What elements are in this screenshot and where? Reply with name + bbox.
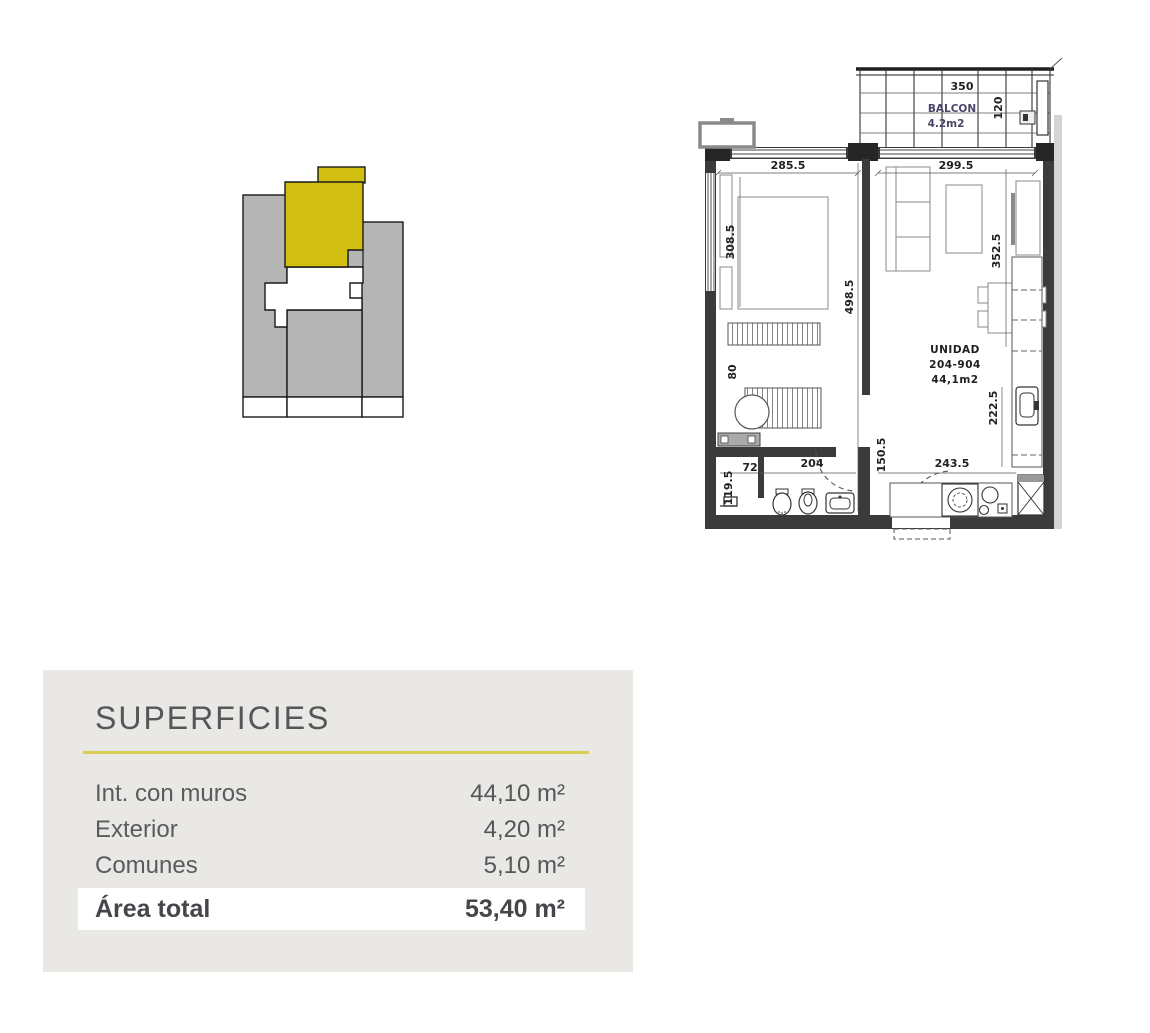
title-underline [83, 751, 589, 754]
tv-cabinet [1016, 181, 1040, 255]
dim-bedroom-width: 285.5 [771, 159, 806, 172]
window-living-top [880, 148, 1034, 158]
total-label: Área total [95, 895, 210, 924]
bidet [799, 489, 817, 514]
dim-living-width: 299.5 [939, 159, 974, 172]
base-cell [243, 397, 287, 417]
dim-living-depth: 352.5 [990, 234, 1003, 269]
balcony-label: BALCON [928, 103, 976, 115]
sofa [886, 167, 930, 271]
wall-bathroom-right [858, 447, 870, 517]
unit-highlight-tab [318, 167, 365, 183]
building-step [348, 250, 363, 267]
wall-right [1043, 147, 1054, 529]
row-value: 5,10 m² [484, 848, 565, 884]
kitchen-counter-right [1012, 257, 1042, 467]
dim-interior-depth: 498.5 [843, 280, 856, 315]
bed [738, 197, 828, 309]
sink-faucet [1034, 401, 1039, 410]
bedroom-shelf-left2 [720, 267, 732, 309]
shelf-box [748, 436, 755, 443]
dim-bath-door: 150.5 [875, 438, 888, 473]
area-row-int-con-muros: Int. con muros 44,10 m² [95, 776, 565, 812]
balcony-width-dim: 350 [951, 80, 974, 93]
total-value: 53,40 m² [465, 895, 565, 924]
balcony-depth-dim: 120 [992, 96, 1005, 119]
dim-shower-depth: 119.5 [722, 471, 735, 506]
wall-pillar-top [848, 143, 878, 161]
wall-bathroom-top [716, 447, 836, 457]
panel-title: SUPERFICIES [43, 670, 633, 737]
toilet [773, 489, 791, 515]
shelf-box [721, 436, 728, 443]
entry-opening [892, 516, 950, 528]
area-row-exterior: Exterior 4,20 m² [95, 812, 565, 848]
dim-kitchen-depth: 222.5 [987, 391, 1000, 426]
unit-name: UNIDAD [930, 344, 980, 356]
window-bedroom-left [706, 173, 715, 291]
exterior-band [1054, 115, 1062, 529]
dim-kitchen-width: 243.5 [935, 457, 970, 470]
area-total-row: Área total 53,40 m² [78, 888, 585, 930]
ac-unit-detail [1023, 114, 1028, 121]
floor-plan: 350 BALCON 4.2m2 120 [690, 55, 1070, 545]
coffee-table [946, 185, 982, 253]
bathroom [718, 433, 854, 515]
dim-closet-width: 80 [726, 364, 739, 380]
unit-label: UNIDAD 204-904 44,1m2 [929, 344, 981, 386]
dim-bath-inner: 72 [742, 461, 757, 474]
row-label: Exterior [95, 812, 178, 848]
row-label: Int. con muros [95, 776, 247, 812]
building-wing-right [362, 222, 403, 397]
bath-sink [826, 493, 854, 513]
wall-divider [862, 159, 870, 395]
unit-range: 204-904 [929, 359, 981, 371]
row-value: 4,20 m² [484, 812, 565, 848]
row-value: 44,10 m² [470, 776, 565, 812]
row-label: Comunes [95, 848, 198, 884]
area-rows: Int. con muros 44,10 m² Exterior 4,20 m²… [95, 776, 565, 884]
balcony-area-label: 4.2m2 [928, 118, 965, 130]
base-cell [287, 397, 362, 417]
dim-bedroom-depth: 308.5 [724, 225, 737, 260]
balcony-corner-tick [1050, 58, 1062, 69]
area-row-comunes: Comunes 5,10 m² [95, 848, 565, 884]
wall-shower-partition [758, 450, 764, 498]
ac-ledge-tab [720, 118, 734, 124]
bedroom [720, 175, 828, 429]
superficies-panel: SUPERFICIES Int. con muros 44,10 m² Exte… [43, 670, 633, 972]
dim-bath-width: 204 [801, 457, 824, 470]
kitchen [890, 257, 1044, 517]
key-plan [230, 155, 410, 425]
building-base-strip [243, 397, 403, 417]
side-table [735, 395, 769, 429]
tv-icon [1011, 193, 1015, 245]
ac-ledge [700, 123, 754, 147]
wall-corner-topright [1036, 143, 1054, 161]
balcony: 350 BALCON 4.2m2 120 [856, 58, 1062, 147]
balcony-door-panel [1037, 81, 1048, 135]
building-wing-center [287, 310, 362, 397]
window-bedroom-top [732, 148, 846, 158]
base-cell [362, 397, 403, 417]
entry-threshold [894, 529, 950, 539]
wardrobe-hatched-1 [728, 323, 820, 345]
unit-area: 44,1m2 [931, 374, 978, 386]
shaft-box [1018, 475, 1044, 515]
